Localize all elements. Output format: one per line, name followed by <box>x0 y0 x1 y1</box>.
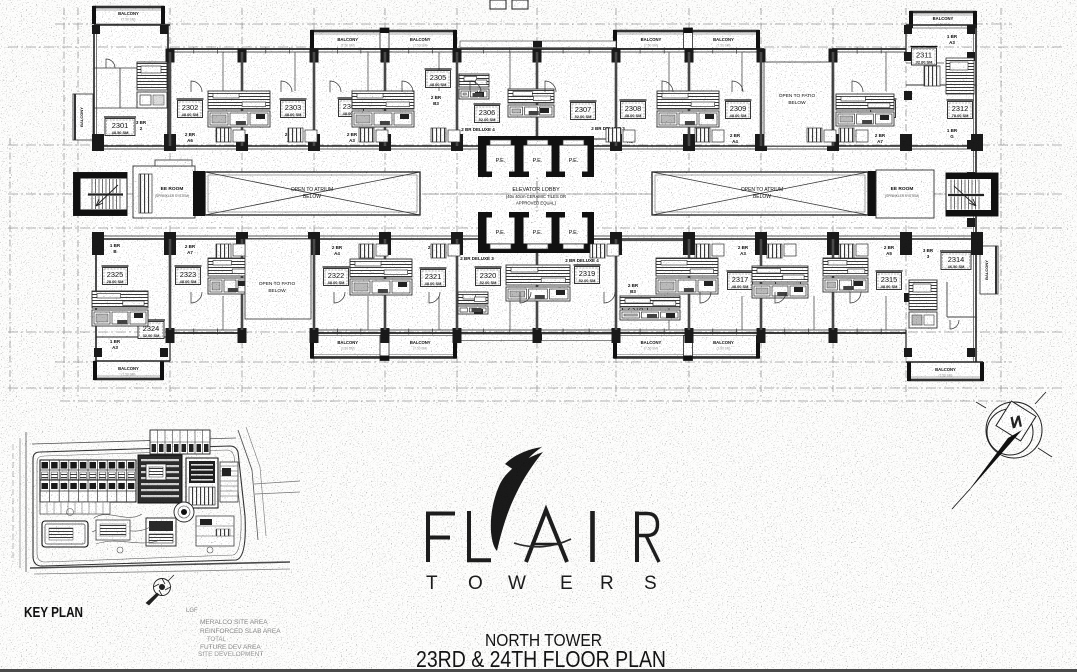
svg-text:2312: 2312 <box>952 104 968 113</box>
svg-text:1 BR: 1 BR <box>110 243 121 248</box>
svg-text:R: R <box>600 573 614 594</box>
svg-text:2302: 2302 <box>182 103 198 112</box>
svg-text:BELOW: BELOW <box>753 194 771 200</box>
svg-text:48.50 SM: 48.50 SM <box>112 130 129 135</box>
svg-text:T: T <box>426 573 438 594</box>
svg-text:52.00 SM: 52.00 SM <box>479 117 496 122</box>
svg-text:2307: 2307 <box>575 105 591 114</box>
svg-text:BALCONY: BALCONY <box>641 37 662 42</box>
svg-text:A3: A3 <box>112 345 118 350</box>
svg-text:(7.50 SM): (7.50 SM) <box>939 374 953 378</box>
svg-text:OPEN TO ATRIUM: OPEN TO ATRIUM <box>291 187 333 193</box>
svg-text:BALCONY: BALCONY <box>713 37 734 42</box>
svg-text:BALCONY: BALCONY <box>337 340 358 345</box>
svg-text:P.E.: P.E. <box>533 158 543 164</box>
svg-text:A4: A4 <box>334 251 340 256</box>
svg-text:(7.50 SM): (7.50 SM) <box>644 347 658 351</box>
svg-text:ELEVATOR LOBBY: ELEVATOR LOBBY <box>512 187 560 193</box>
svg-text:23RD & 24TH FLOOR PLAN: 23RD & 24TH FLOOR PLAN <box>416 646 666 672</box>
svg-text:2 BR: 2 BR <box>185 244 196 249</box>
svg-text:48.00 SM: 48.00 SM <box>732 284 749 289</box>
svg-text:(7.50 SM): (7.50 SM) <box>644 44 658 48</box>
svg-text:3 BR: 3 BR <box>136 120 147 125</box>
svg-text:2321: 2321 <box>425 272 441 281</box>
svg-text:P.E.: P.E. <box>533 230 543 236</box>
svg-text:28.00 SM: 28.00 SM <box>107 279 124 284</box>
svg-text:P.E.: P.E. <box>569 158 579 164</box>
svg-text:(7.50 SM): (7.50 SM) <box>341 347 355 351</box>
svg-text:(7.50 SM): (7.50 SM) <box>717 44 731 48</box>
svg-text:52.00 SM: 52.00 SM <box>579 278 596 283</box>
svg-text:2314: 2314 <box>948 255 964 264</box>
svg-text:2320: 2320 <box>480 271 496 280</box>
svg-text:2 BR: 2 BR <box>884 245 895 250</box>
svg-text:APPROVED EQUAL): APPROVED EQUAL) <box>516 201 557 206</box>
svg-text:48.00 SM: 48.00 SM <box>730 113 747 118</box>
svg-text:2323: 2323 <box>180 270 196 279</box>
svg-text:48.00 SM: 48.00 SM <box>425 281 442 286</box>
svg-text:A6: A6 <box>187 138 193 143</box>
svg-text:LGF: LGF <box>186 608 198 614</box>
svg-text:(40x 40cm CERAMIC TILES OR: (40x 40cm CERAMIC TILES OR <box>506 194 566 199</box>
svg-text:B3: B3 <box>433 101 439 106</box>
svg-text:OPEN TO ATRIUM: OPEN TO ATRIUM <box>741 187 783 193</box>
svg-text:32.00 SM: 32.00 SM <box>916 60 933 65</box>
svg-text:2319: 2319 <box>579 269 595 278</box>
svg-text:1 BR: 1 BR <box>110 339 121 344</box>
svg-text:BELOW: BELOW <box>303 194 321 200</box>
svg-text:2 BR: 2 BR <box>185 132 196 137</box>
svg-text:48.00 SM: 48.00 SM <box>182 112 199 117</box>
svg-text:78.00 SM: 78.00 SM <box>952 113 969 118</box>
svg-text:2308: 2308 <box>625 104 641 113</box>
svg-text:P.E.: P.E. <box>496 230 506 236</box>
svg-text:2322: 2322 <box>328 271 344 280</box>
svg-text:A3: A3 <box>740 251 746 256</box>
svg-text:A3: A3 <box>349 138 355 143</box>
svg-text:2 BR: 2 BR <box>738 245 749 250</box>
svg-text:KEY PLAN: KEY PLAN <box>24 604 83 621</box>
svg-text:(7.50 SM): (7.50 SM) <box>341 44 355 48</box>
svg-text:W: W <box>508 573 526 594</box>
svg-text:REINFORCED SLAB AREA: REINFORCED SLAB AREA <box>200 628 281 635</box>
svg-text:TOTAL: TOTAL <box>207 637 226 643</box>
svg-text:2 BR DELUXE 3: 2 BR DELUXE 3 <box>460 256 494 261</box>
svg-text:2305: 2305 <box>430 73 446 82</box>
svg-text:46.50 SM: 46.50 SM <box>948 264 965 269</box>
svg-text:EE ROOM: EE ROOM <box>891 186 914 192</box>
svg-text:BALCONY: BALCONY <box>935 367 956 372</box>
svg-text:FUTURE DEV AREA: FUTURE DEV AREA <box>200 644 261 651</box>
svg-text:2317: 2317 <box>732 275 748 284</box>
svg-text:2303: 2303 <box>285 103 301 112</box>
svg-text:A7: A7 <box>877 139 883 144</box>
svg-text:BALCONY: BALCONY <box>933 16 954 21</box>
svg-text:BELOW: BELOW <box>788 100 806 106</box>
svg-text:(SPRINKLER SYSTEM): (SPRINKLER SYSTEM) <box>885 194 919 198</box>
svg-text:BALCONY: BALCONY <box>79 107 84 127</box>
svg-text:BALCONY: BALCONY <box>410 340 431 345</box>
svg-text:MERALCO SITE AREA: MERALCO SITE AREA <box>200 619 268 626</box>
svg-text:BALCONY: BALCONY <box>713 340 734 345</box>
svg-text:(7.50 SM): (7.50 SM) <box>413 44 427 48</box>
svg-text:32.00 SM: 32.00 SM <box>143 333 160 338</box>
svg-text:2315: 2315 <box>881 275 897 284</box>
svg-text:2 BR: 2 BR <box>332 245 343 250</box>
svg-text:2 BR: 2 BR <box>875 133 886 138</box>
svg-text:O: O <box>468 573 483 594</box>
svg-text:E: E <box>560 573 573 594</box>
svg-text:(SPRINKLER SYSTEM): (SPRINKLER SYSTEM) <box>155 194 189 198</box>
svg-text:BALCONY: BALCONY <box>410 37 431 42</box>
svg-text:2 BR: 2 BR <box>347 132 358 137</box>
svg-text:2 BR: 2 BR <box>431 95 442 100</box>
svg-text:BALCONY: BALCONY <box>337 37 358 42</box>
svg-text:(7.50 SM): (7.50 SM) <box>717 347 731 351</box>
svg-text:2 BR DELUXE 4: 2 BR DELUXE 4 <box>565 258 599 263</box>
svg-text:48.00 SM: 48.00 SM <box>625 113 642 118</box>
svg-text:OPEN TO PATIO: OPEN TO PATIO <box>779 93 816 99</box>
svg-text:P.E.: P.E. <box>496 158 506 164</box>
svg-text:2311: 2311 <box>916 51 932 60</box>
svg-text:52.00 SM: 52.00 SM <box>575 114 592 119</box>
svg-text:48.00 SM: 48.00 SM <box>180 279 197 284</box>
svg-text:2 BR DELUXE 4: 2 BR DELUXE 4 <box>461 127 495 132</box>
svg-text:48.00 SM: 48.00 SM <box>881 284 898 289</box>
svg-text:2 BR: 2 BR <box>628 283 639 288</box>
svg-text:BELOW: BELOW <box>268 288 286 294</box>
svg-text:EE ROOM: EE ROOM <box>161 186 184 192</box>
svg-text:(7.50 SM): (7.50 SM) <box>122 373 136 377</box>
svg-text:S: S <box>644 573 657 594</box>
svg-text:2325: 2325 <box>107 270 123 279</box>
svg-text:(7.50 SM): (7.50 SM) <box>122 18 136 22</box>
svg-text:2309: 2309 <box>730 104 746 113</box>
svg-text:BALCONY: BALCONY <box>641 340 662 345</box>
svg-text:A5: A5 <box>886 251 892 256</box>
svg-text:A4: A4 <box>732 139 738 144</box>
svg-text:48.00 SM: 48.00 SM <box>285 112 302 117</box>
svg-text:B3: B3 <box>630 289 636 294</box>
svg-text:48.00 SM: 48.00 SM <box>328 280 345 285</box>
svg-text:A7: A7 <box>187 250 193 255</box>
svg-text:BALCONY: BALCONY <box>118 366 139 371</box>
svg-text:48.00 SM: 48.00 SM <box>430 82 447 87</box>
svg-text:(7.50 SM): (7.50 SM) <box>413 347 427 351</box>
svg-text:2306: 2306 <box>479 108 495 117</box>
svg-text:52.00 SM: 52.00 SM <box>480 280 497 285</box>
svg-text:A3: A3 <box>949 40 955 45</box>
svg-text:3 BR: 3 BR <box>923 248 934 253</box>
svg-text:P.E.: P.E. <box>569 230 579 236</box>
svg-text:2301: 2301 <box>112 121 128 130</box>
svg-text:1 BR: 1 BR <box>947 128 958 133</box>
svg-text:BALCONY: BALCONY <box>118 11 139 16</box>
svg-text:1 BR: 1 BR <box>947 34 958 39</box>
svg-text:OPEN TO PATIO: OPEN TO PATIO <box>259 281 296 287</box>
svg-text:G: G <box>950 134 954 139</box>
svg-text:2 BR: 2 BR <box>730 133 741 138</box>
svg-text:SITE DEVELOPMENT: SITE DEVELOPMENT <box>198 651 263 658</box>
svg-text:BALCONY: BALCONY <box>984 260 989 280</box>
